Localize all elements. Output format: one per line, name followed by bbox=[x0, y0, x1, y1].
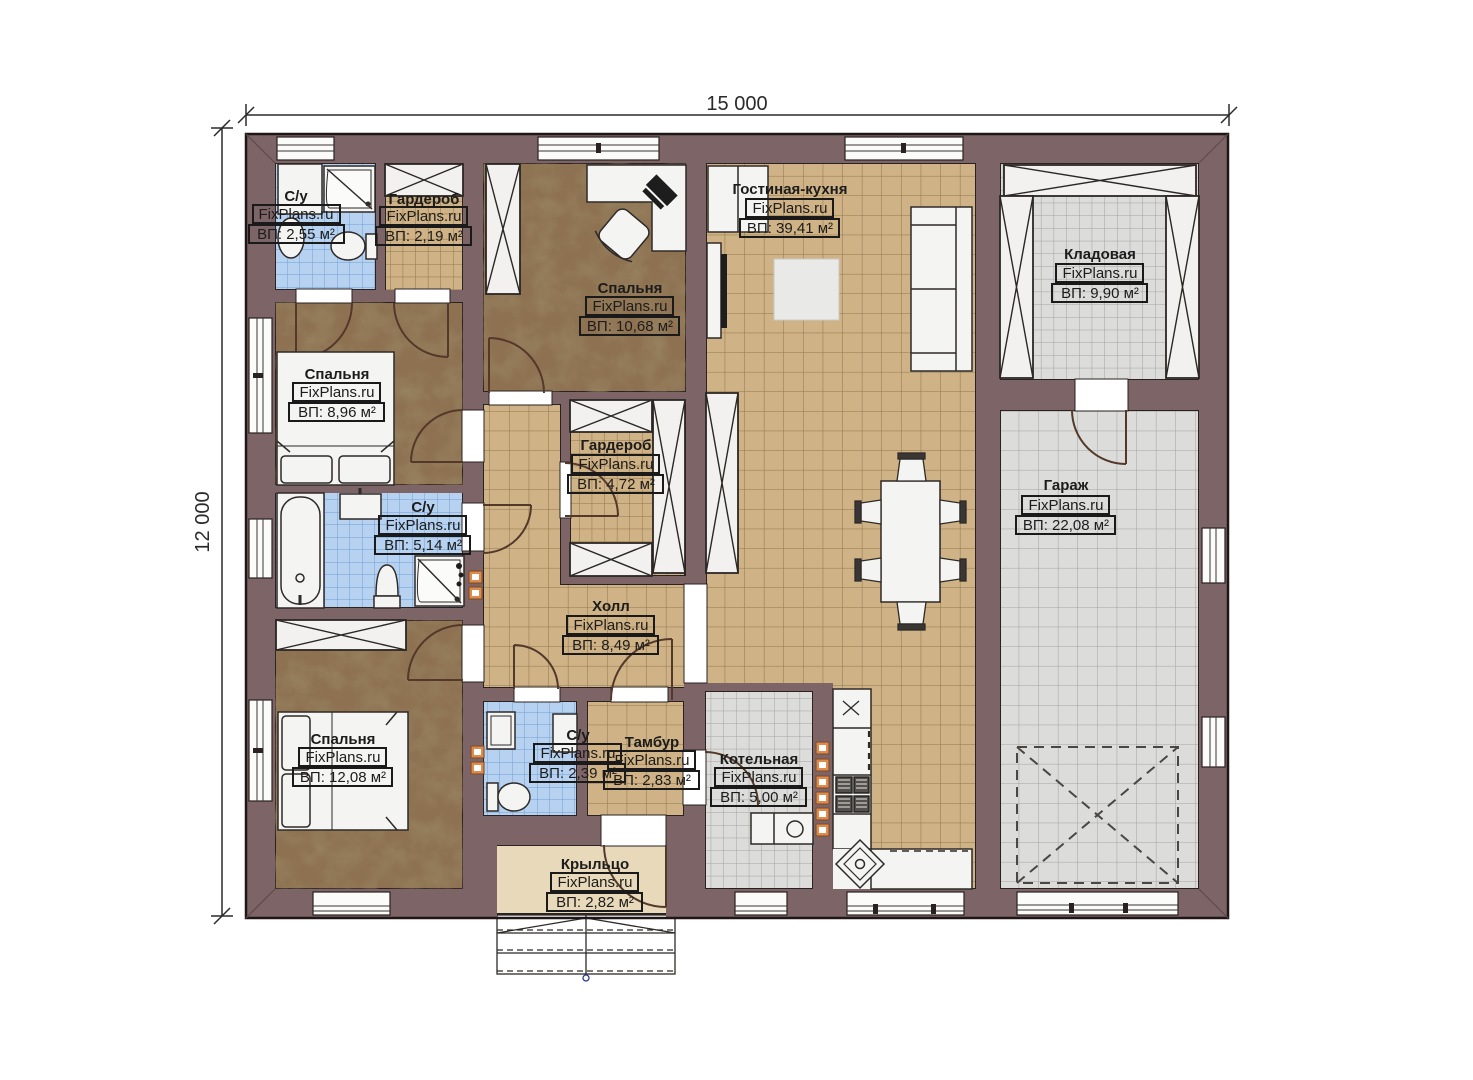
svg-text:ВП: 2,39 м²: ВП: 2,39 м² bbox=[539, 765, 617, 782]
svg-text:FixPlans.ru: FixPlans.ru bbox=[305, 749, 380, 766]
svg-text:ВП: 2,83 м²: ВП: 2,83 м² bbox=[613, 772, 691, 789]
svg-text:ВП: 8,96 м²: ВП: 8,96 м² bbox=[298, 404, 376, 421]
svg-text:Тамбур: Тамбур bbox=[625, 734, 679, 751]
svg-text:ВП: 39,41 м²: ВП: 39,41 м² bbox=[747, 220, 833, 237]
svg-text:ВП: 5,14 м²: ВП: 5,14 м² bbox=[384, 537, 462, 554]
svg-text:ВП: 22,08 м²: ВП: 22,08 м² bbox=[1023, 517, 1109, 534]
svg-text:ВП: 4,72 м²: ВП: 4,72 м² bbox=[577, 476, 655, 493]
svg-text:Гостиная-кухня: Гостиная-кухня bbox=[733, 181, 848, 198]
svg-text:Гараж: Гараж bbox=[1044, 477, 1089, 494]
svg-text:FixPlans.ru: FixPlans.ru bbox=[614, 752, 689, 769]
svg-text:FixPlans.ru: FixPlans.ru bbox=[385, 517, 460, 534]
svg-text:FixPlans.ru: FixPlans.ru bbox=[1062, 265, 1137, 282]
svg-text:ВП: 10,68 м²: ВП: 10,68 м² bbox=[587, 318, 673, 335]
svg-text:FixPlans.ru: FixPlans.ru bbox=[721, 769, 796, 786]
svg-text:Крыльцо: Крыльцо bbox=[561, 856, 629, 873]
svg-text:ВП: 2,19 м²: ВП: 2,19 м² bbox=[385, 228, 463, 245]
svg-text:Спальня: Спальня bbox=[305, 366, 370, 383]
svg-text:FixPlans.ru: FixPlans.ru bbox=[752, 200, 827, 217]
svg-text:FixPlans.ru: FixPlans.ru bbox=[578, 456, 653, 473]
svg-text:Кладовая: Кладовая bbox=[1064, 246, 1136, 263]
svg-text:Котельная: Котельная bbox=[720, 751, 799, 768]
svg-text:ВП: 2,55 м²: ВП: 2,55 м² bbox=[257, 226, 335, 243]
svg-text:ВП: 2,82 м²: ВП: 2,82 м² bbox=[556, 894, 634, 911]
svg-text:FixPlans.ru: FixPlans.ru bbox=[557, 874, 632, 891]
svg-text:Гардероб: Гардероб bbox=[581, 437, 652, 454]
svg-text:FixPlans.ru: FixPlans.ru bbox=[1028, 497, 1103, 514]
svg-text:ВП: 9,90 м²: ВП: 9,90 м² bbox=[1061, 285, 1139, 302]
svg-text:FixPlans.ru: FixPlans.ru bbox=[258, 206, 333, 223]
svg-text:FixPlans.ru: FixPlans.ru bbox=[299, 384, 374, 401]
svg-text:ВП: 8,49 м²: ВП: 8,49 м² bbox=[572, 637, 650, 654]
svg-text:15 000: 15 000 bbox=[706, 93, 767, 115]
svg-text:С/у: С/у bbox=[566, 727, 590, 744]
svg-text:Спальня: Спальня bbox=[598, 280, 663, 297]
svg-text:FixPlans.ru: FixPlans.ru bbox=[592, 298, 667, 315]
svg-text:С/у: С/у bbox=[411, 499, 435, 516]
svg-text:Холл: Холл bbox=[592, 598, 630, 615]
svg-text:ВП: 12,08 м²: ВП: 12,08 м² bbox=[300, 769, 386, 786]
svg-text:Гардероб: Гардероб bbox=[389, 191, 460, 208]
svg-text:ВП: 5,00 м²: ВП: 5,00 м² bbox=[720, 789, 798, 806]
svg-text:С/у: С/у bbox=[284, 188, 308, 205]
svg-text:FixPlans.ru: FixPlans.ru bbox=[573, 617, 648, 634]
svg-text:12 000: 12 000 bbox=[192, 491, 214, 552]
svg-text:FixPlans.ru: FixPlans.ru bbox=[540, 745, 615, 762]
svg-text:Спальня: Спальня bbox=[311, 731, 376, 748]
svg-text:FixPlans.ru: FixPlans.ru bbox=[386, 208, 461, 225]
